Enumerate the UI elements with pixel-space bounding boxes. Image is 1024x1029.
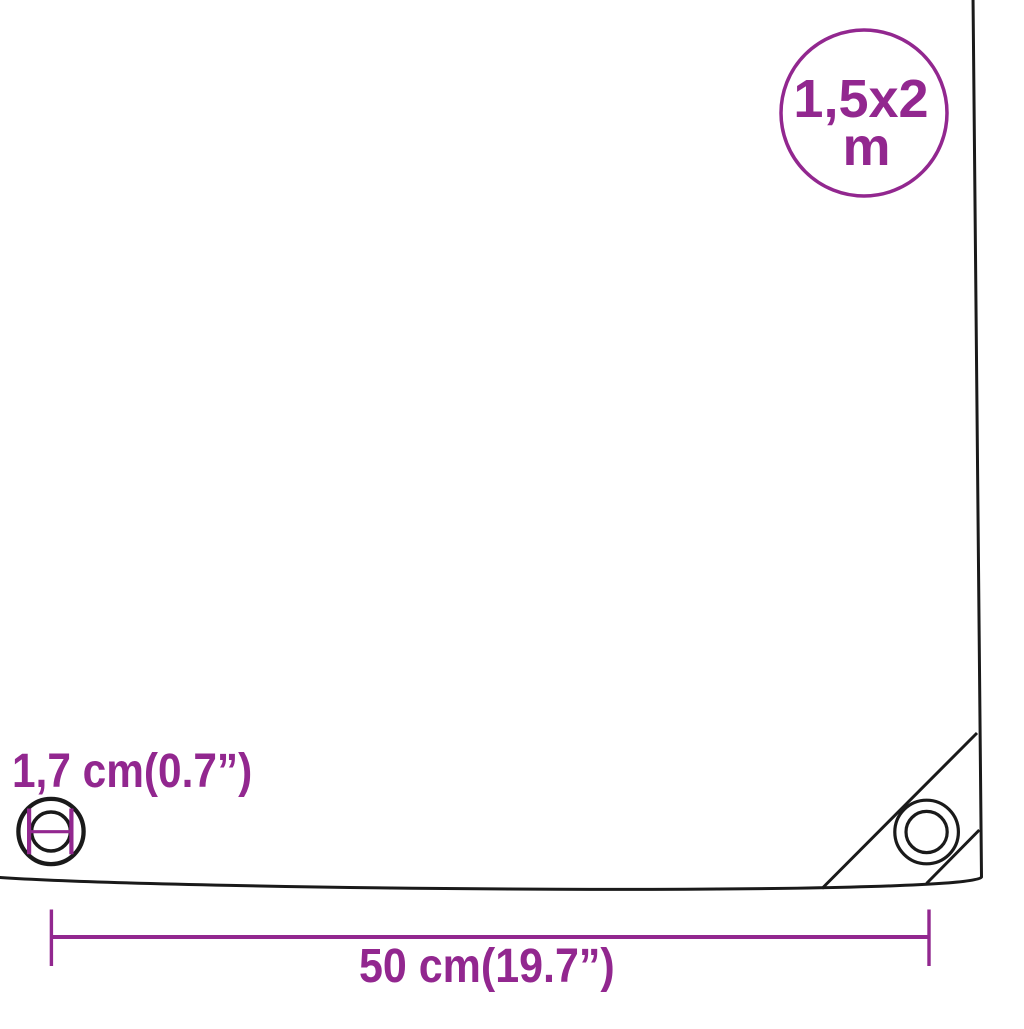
svg-text:50 cm(19.7”): 50 cm(19.7”): [359, 939, 615, 993]
svg-text:m: m: [842, 117, 890, 177]
svg-text:1,7 cm(0.7”): 1,7 cm(0.7”): [12, 744, 252, 798]
